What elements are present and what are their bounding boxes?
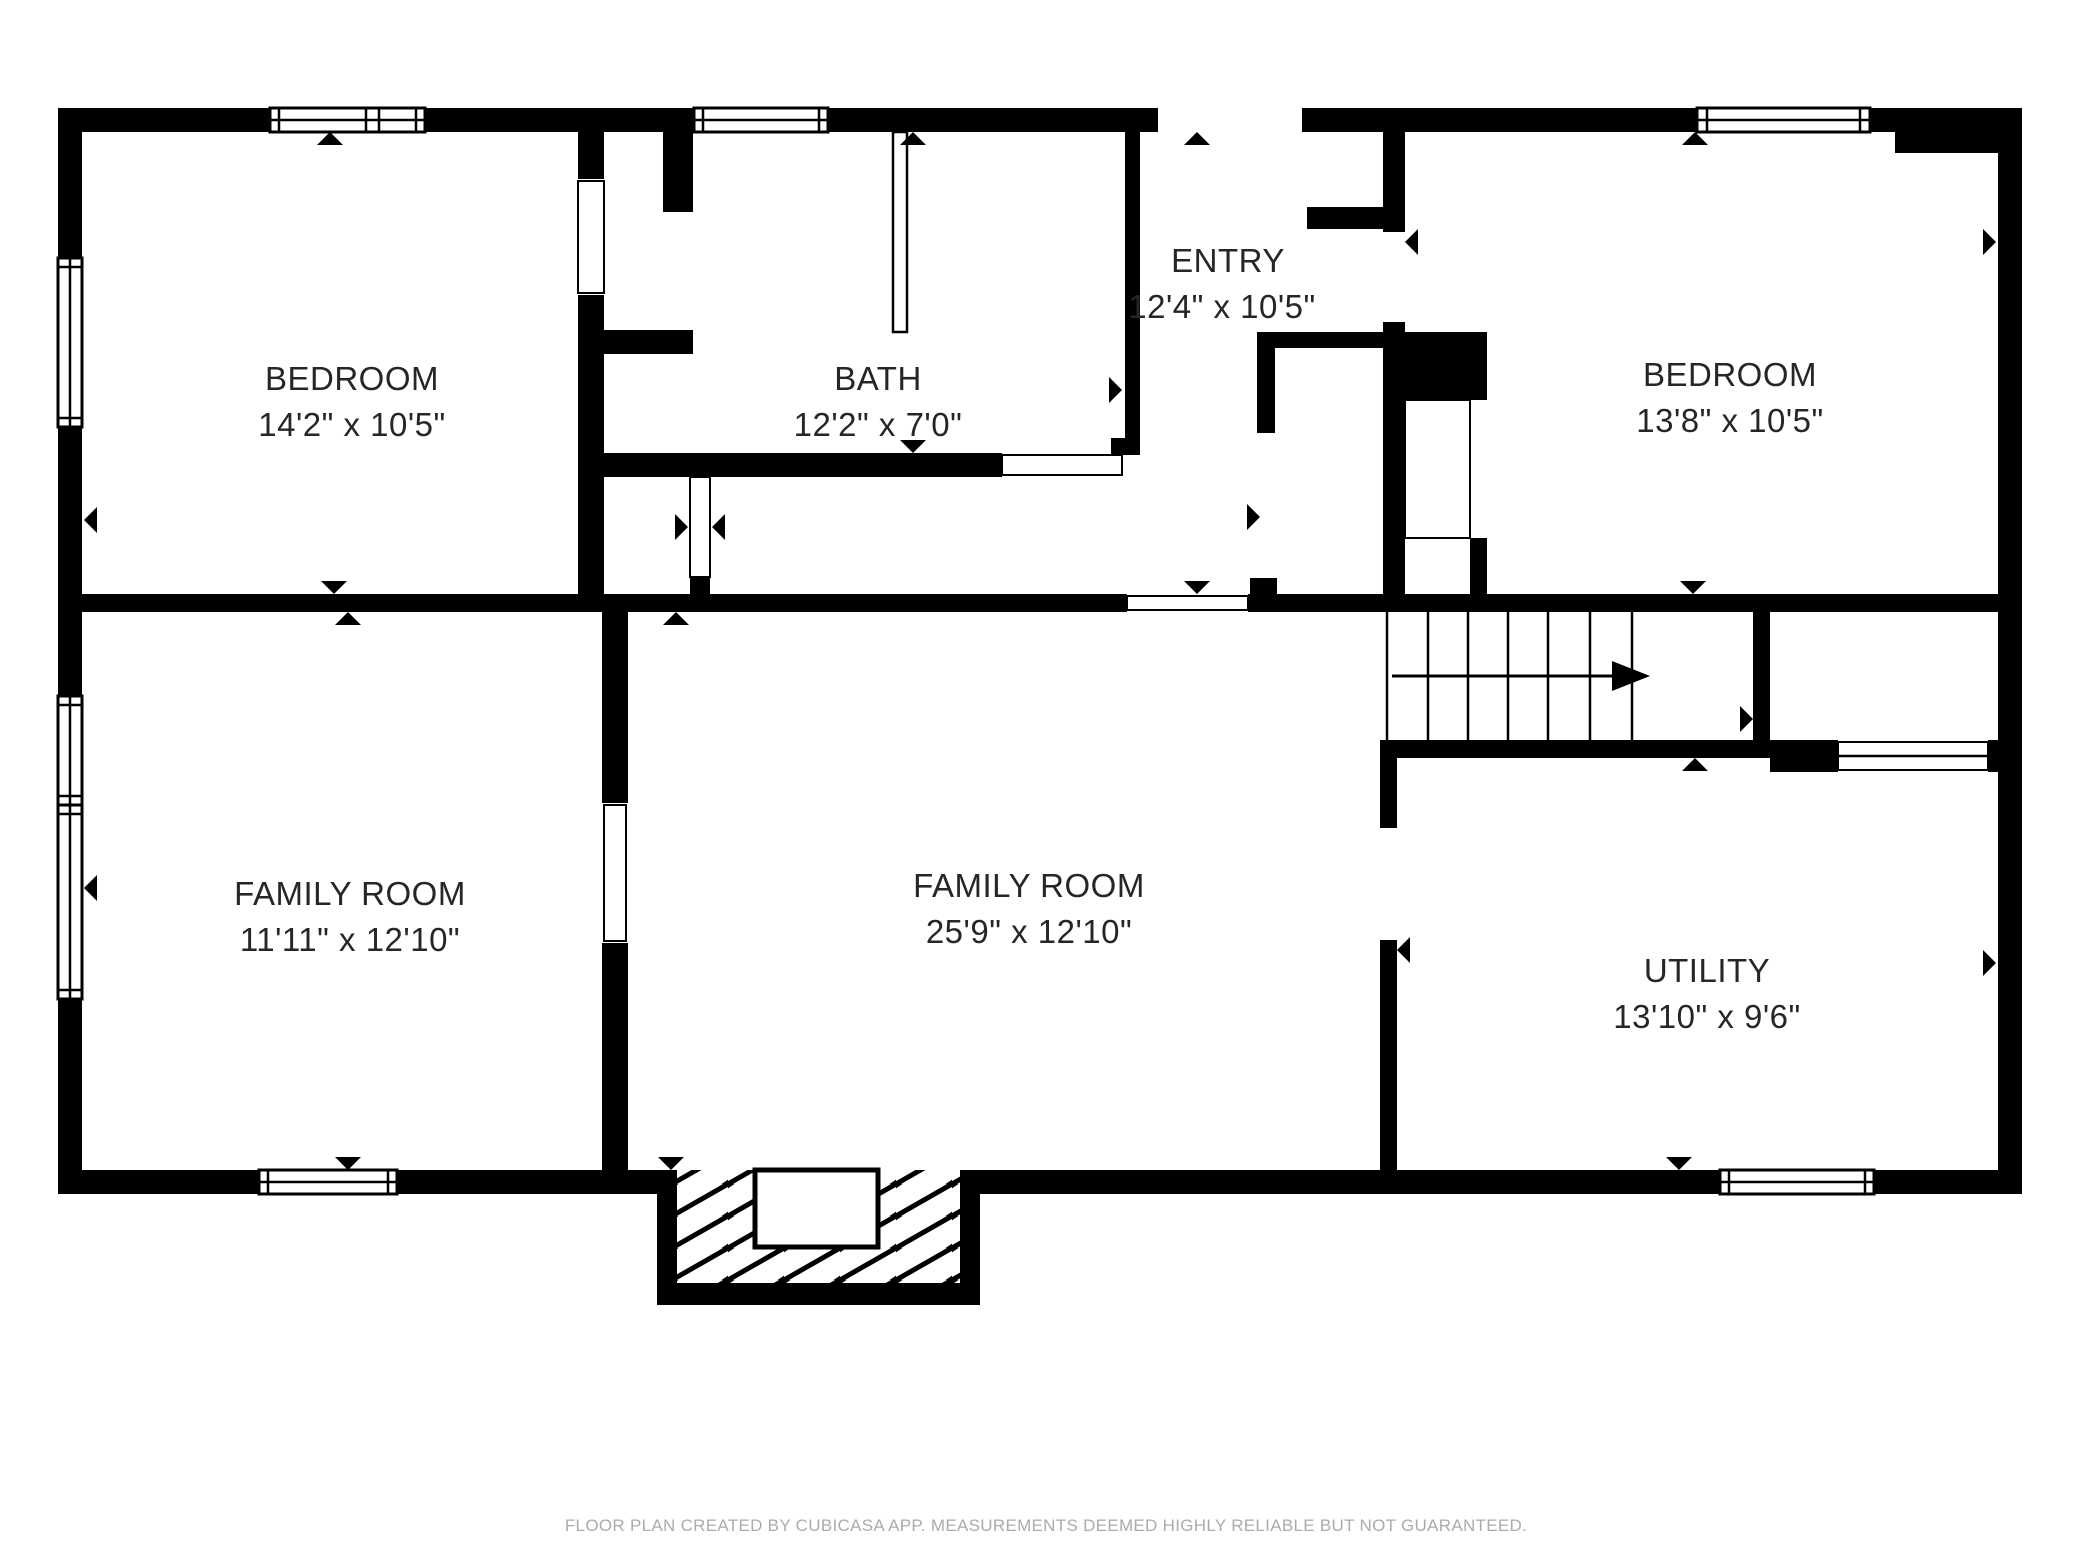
entry-east-wall-upper [1383, 132, 1405, 232]
hall-passage-opening [1127, 596, 1248, 610]
entry-se-wall-h [1257, 332, 1383, 348]
window-family1-left-lower [58, 805, 82, 999]
bath-entry-doorway [1002, 455, 1122, 475]
stairs-right-wall [1753, 612, 1770, 740]
footer-disclaimer: FLOOR PLAN CREATED BY CUBICASA APP. MEAS… [565, 1516, 1527, 1535]
family-divider-upper [602, 594, 628, 803]
middle-wall-west [58, 594, 1127, 612]
room-label-family-room-2: FAMILY ROOM [913, 867, 1145, 904]
room-label-bath: BATH [834, 360, 922, 397]
bath-bottom-wall [578, 453, 1002, 477]
bedroom2-closet [1405, 400, 1470, 538]
hall-pocket-door [690, 477, 710, 577]
window-bedroom1-top [270, 108, 425, 132]
closet-bottom-wall [578, 330, 693, 354]
room-dims-bedroom-2: 13'8" x 10'5" [1636, 402, 1823, 439]
window-bedroom1-left [58, 258, 82, 427]
family-divider-lower [602, 943, 628, 1170]
bedroom2-structural-block [1400, 332, 1487, 400]
room-label-bedroom-2: BEDROOM [1643, 356, 1817, 393]
ne-corner-block [1895, 132, 1998, 153]
window-family1-left-upper [58, 696, 82, 805]
closet-right-stub [663, 132, 693, 212]
entry-se-wall-foot [1250, 578, 1277, 594]
utility-west-wall-upper [1380, 740, 1397, 828]
middle-wall-east [1248, 594, 1998, 612]
window-family1-bottom [259, 1170, 397, 1194]
room-label-family-room-1: FAMILY ROOM [234, 875, 466, 912]
window-bedroom2-top [1697, 108, 1870, 132]
chimney [657, 1170, 980, 1305]
room-labels: BEDROOM 14'2" x 10'5" BATH 12'2" x 7'0" … [234, 242, 1824, 1035]
floor-plan-page: BEDROOM 14'2" x 10'5" BATH 12'2" x 7'0" … [0, 0, 2080, 1560]
entry-west-wall-foot [1111, 438, 1140, 455]
room-dims-bath: 12'2" x 7'0" [794, 406, 963, 443]
room-label-entry: ENTRY [1171, 242, 1285, 279]
room-label-utility: UTILITY [1644, 952, 1770, 989]
room-dims-entry: 12'4" x 10'5" [1128, 288, 1315, 325]
bedroom2-closet-stub [1470, 538, 1487, 594]
utility-top-wall-left [1770, 740, 1838, 772]
entry-west-wall [1125, 132, 1140, 438]
utility-top-wall-right [1988, 740, 1998, 772]
window-bath-top [694, 108, 828, 132]
family-rooms-door [604, 805, 626, 941]
windows [58, 108, 1874, 1194]
stairs-direction-arrow [1392, 661, 1650, 691]
room-dims-utility: 13'10" x 9'6" [1613, 998, 1800, 1035]
utility-pass-through [1838, 742, 1988, 770]
firebox [755, 1170, 878, 1247]
room-dims-family-room-1: 11'11" x 12'10" [240, 921, 460, 958]
shower-glass-panel [893, 132, 907, 332]
bedroom1-closet-door [578, 181, 604, 293]
room-dims-bedroom-1: 14'2" x 10'5" [258, 406, 445, 443]
entry-se-wall-v [1257, 348, 1275, 433]
entry-door-marker [1184, 132, 1210, 145]
window-utility-bottom [1720, 1170, 1874, 1194]
utility-west-wall-lower [1380, 940, 1397, 1170]
floor-plan-canvas: BEDROOM 14'2" x 10'5" BATH 12'2" x 7'0" … [0, 0, 2080, 1560]
room-label-bedroom-1: BEDROOM [265, 360, 439, 397]
room-dims-family-room-2: 25'9" x 12'10" [926, 913, 1132, 950]
stairs-bottom-wall [1385, 740, 1770, 758]
entry-nook-stub [1307, 207, 1383, 229]
bedroom1-closet-wall-top [578, 132, 604, 179]
hall-divider-foot [690, 577, 710, 596]
staircase [1387, 612, 1650, 740]
